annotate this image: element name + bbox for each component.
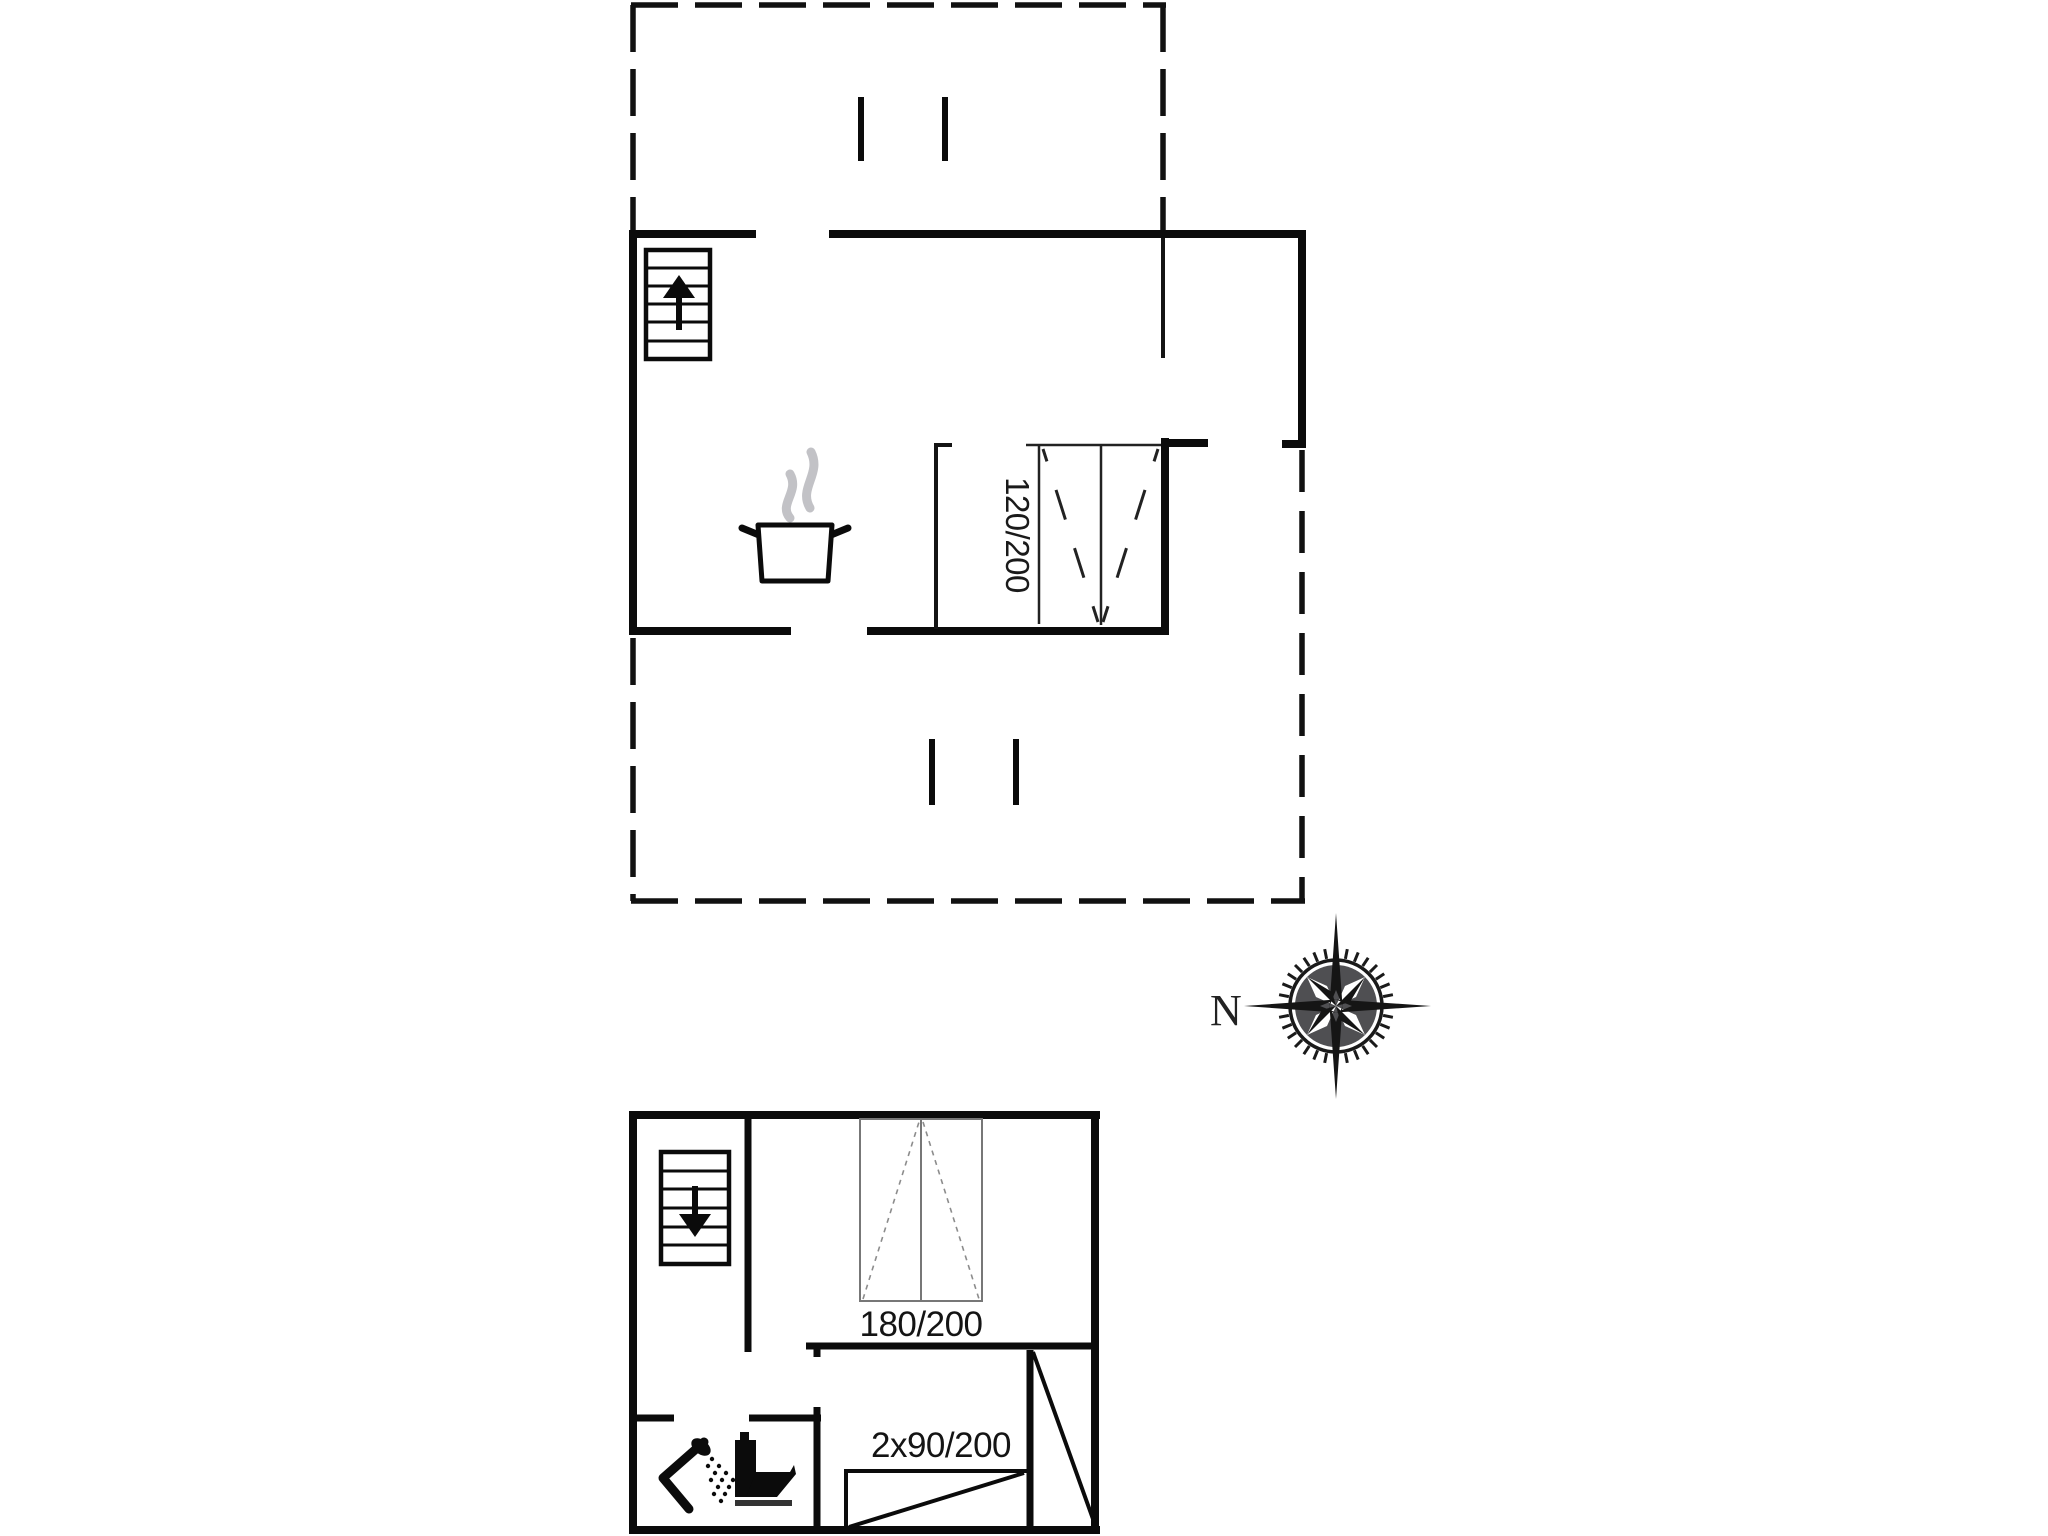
svg-text:N: N [1210,986,1242,1035]
svg-text:120/200: 120/200 [999,477,1036,593]
svg-text:2x90/200: 2x90/200 [871,1426,1011,1465]
svg-text:180/200: 180/200 [859,1305,982,1344]
